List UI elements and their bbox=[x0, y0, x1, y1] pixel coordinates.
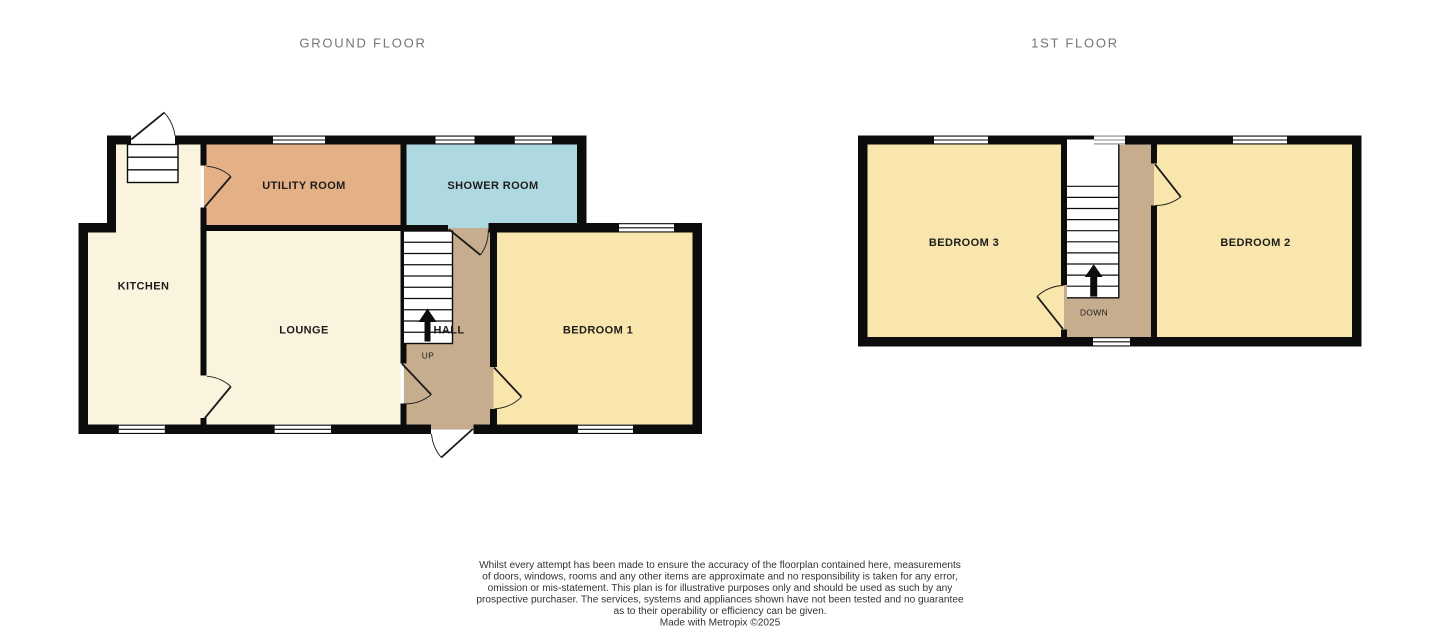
svg-text:UP: UP bbox=[422, 351, 434, 361]
svg-text:UTILITY ROOM: UTILITY ROOM bbox=[262, 180, 345, 192]
svg-text:BEDROOM 3: BEDROOM 3 bbox=[929, 237, 999, 249]
svg-text:HALL: HALL bbox=[434, 325, 465, 337]
svg-text:as to their operability or eff: as to their operability or efficiency ca… bbox=[613, 606, 826, 617]
svg-text:DOWN: DOWN bbox=[1080, 308, 1108, 318]
svg-text:omission or mis-statement. Thi: omission or mis-statement. This plan is … bbox=[488, 583, 954, 594]
svg-text:prospective purchaser. The ser: prospective purchaser. The services, sys… bbox=[476, 595, 964, 606]
svg-text:SHOWER ROOM: SHOWER ROOM bbox=[447, 180, 538, 192]
svg-text:KITCHEN: KITCHEN bbox=[118, 281, 170, 293]
svg-text:1ST FLOOR: 1ST FLOOR bbox=[1031, 36, 1119, 51]
svg-text:Made with Metropix ©2025: Made with Metropix ©2025 bbox=[660, 618, 781, 628]
svg-text:BEDROOM 2: BEDROOM 2 bbox=[1220, 237, 1290, 249]
svg-text:BEDROOM 1: BEDROOM 1 bbox=[563, 325, 633, 337]
svg-text:LOUNGE: LOUNGE bbox=[279, 325, 328, 337]
svg-text:GROUND FLOOR: GROUND FLOOR bbox=[299, 36, 426, 51]
svg-text:Whilst every attempt has been: Whilst every attempt has been made to en… bbox=[479, 560, 961, 571]
svg-text:of doors, windows, rooms and a: of doors, windows, rooms and any other i… bbox=[482, 572, 958, 583]
